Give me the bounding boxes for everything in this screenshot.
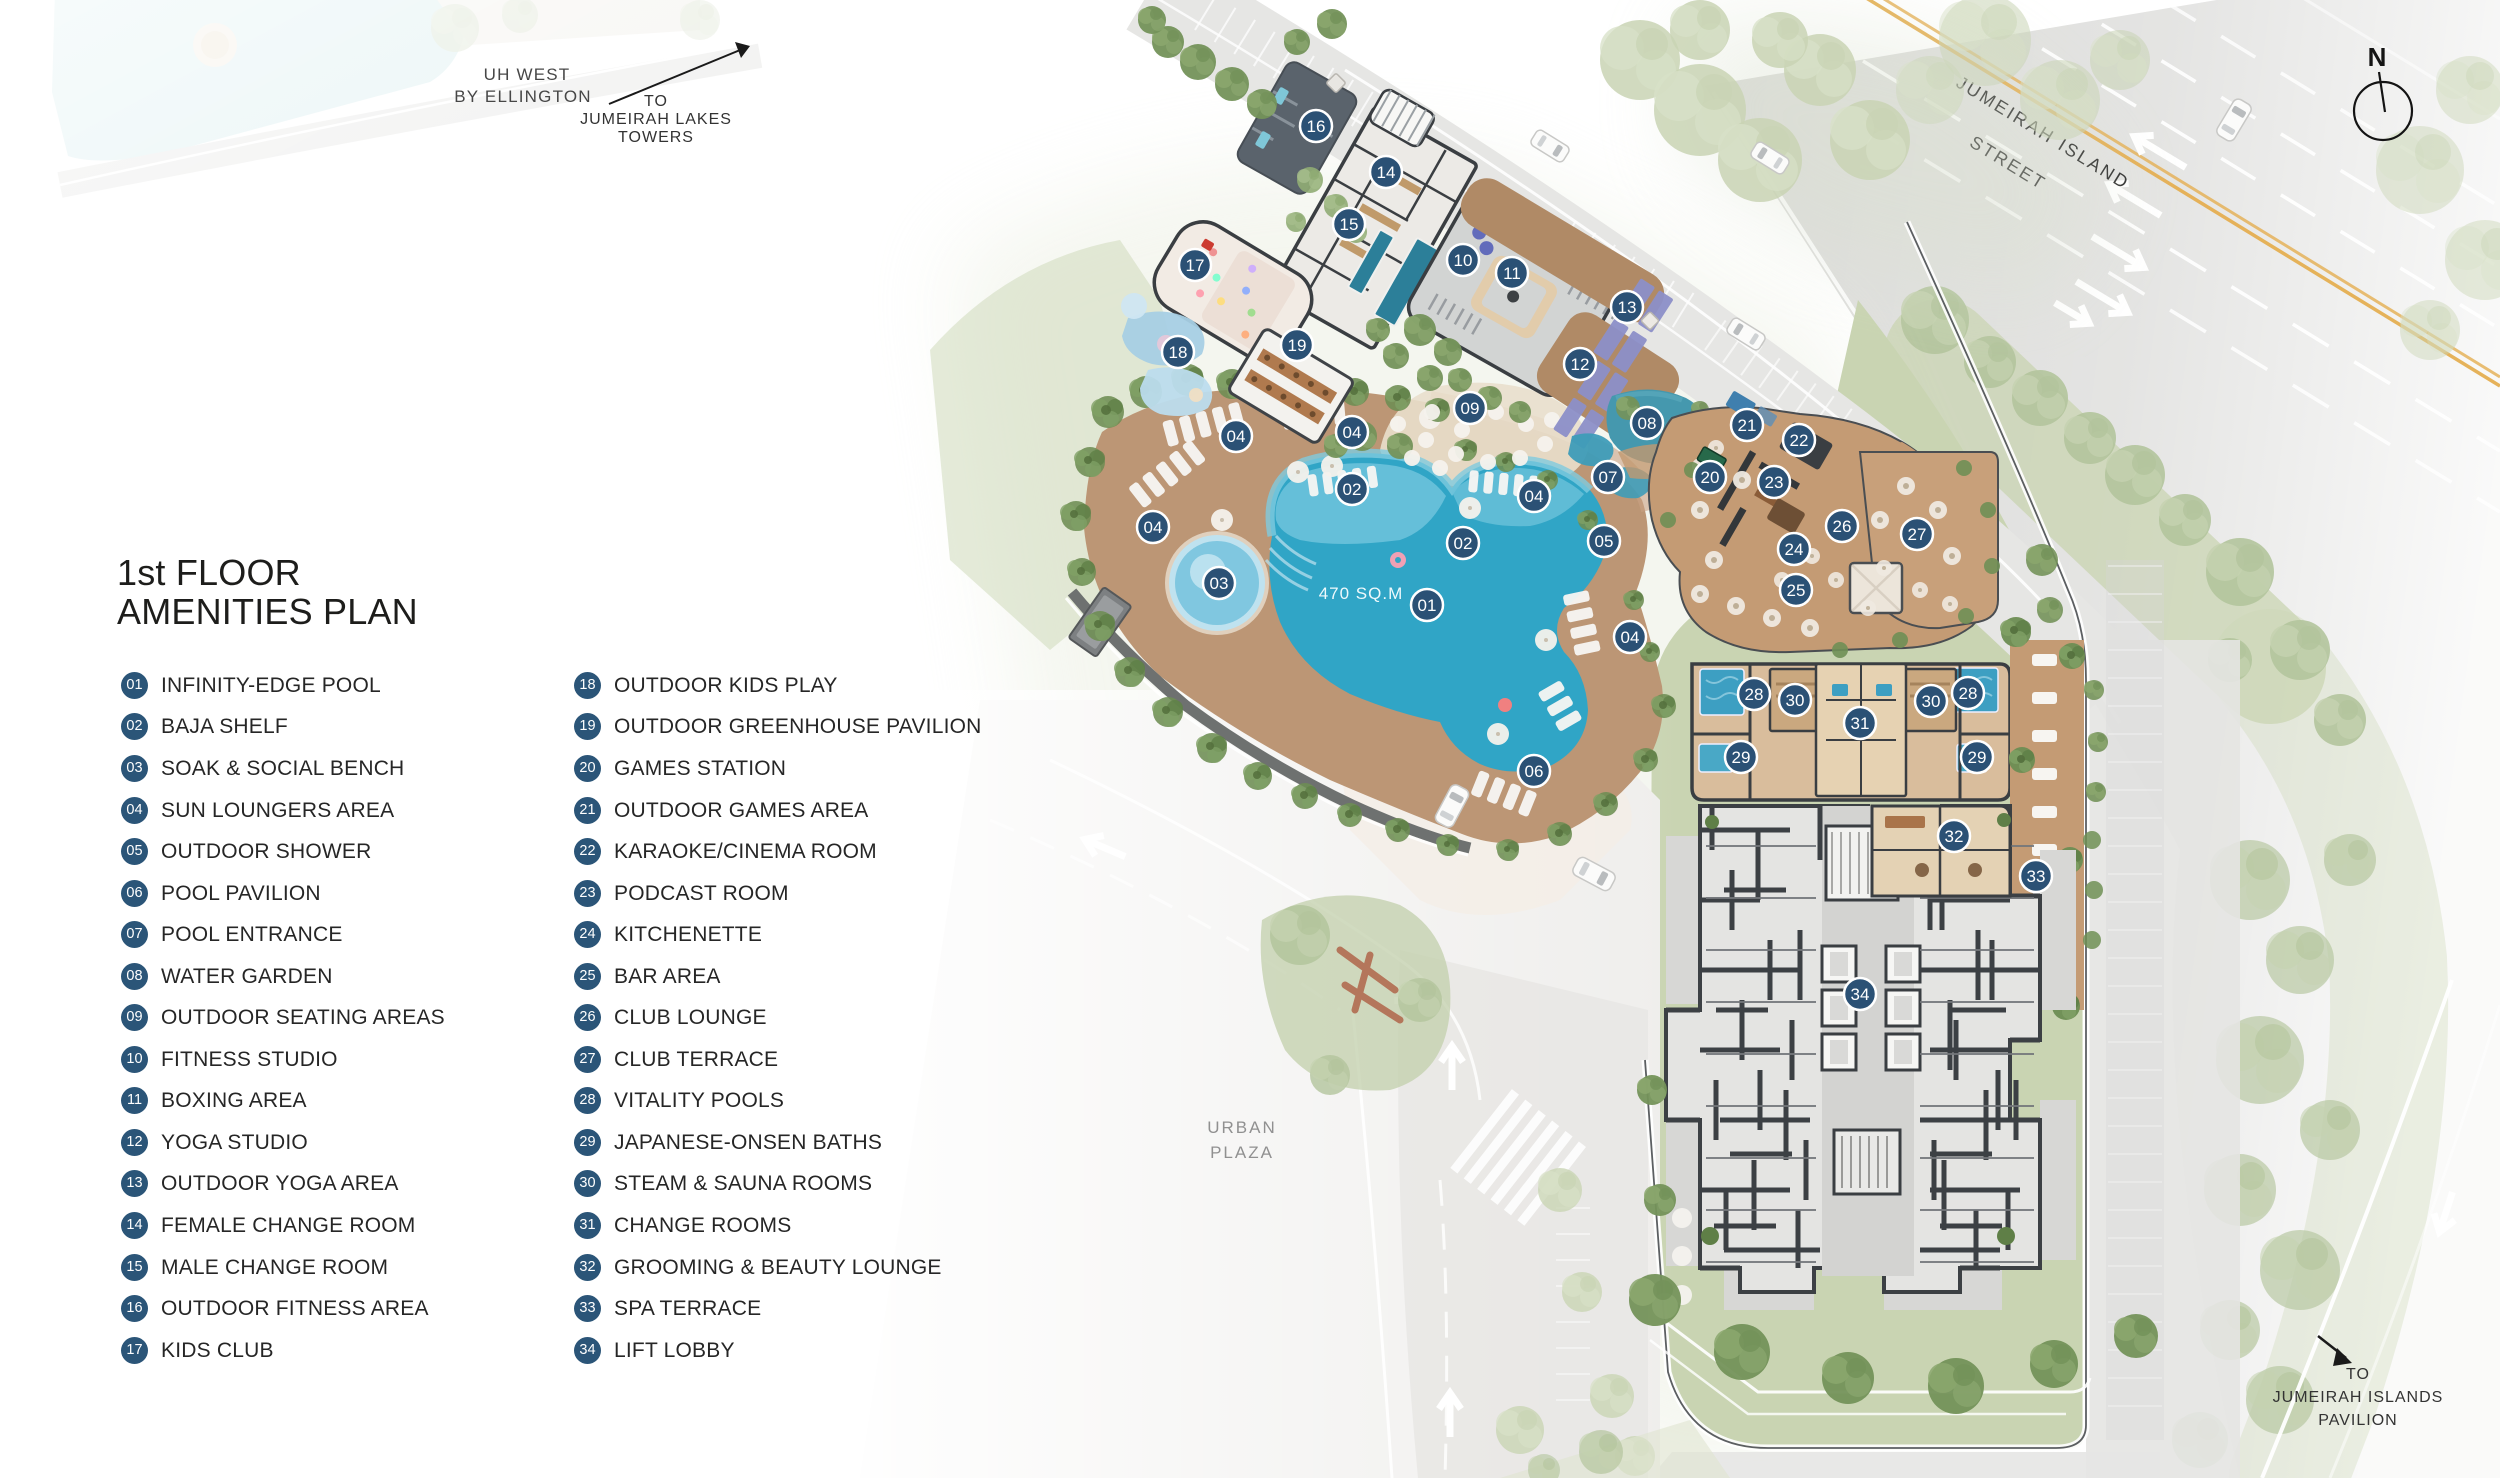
- svg-text:08: 08: [1638, 414, 1657, 433]
- svg-text:28: 28: [1745, 685, 1764, 704]
- svg-text:TO: TO: [644, 93, 668, 110]
- svg-text:32: 32: [1945, 827, 1964, 846]
- svg-text:14: 14: [1377, 163, 1396, 182]
- svg-text:15: 15: [1340, 215, 1359, 234]
- svg-text:02: 02: [1343, 480, 1362, 499]
- svg-text:TO: TO: [2346, 1366, 2370, 1383]
- svg-text:28: 28: [1959, 684, 1978, 703]
- svg-text:16: 16: [1307, 117, 1326, 136]
- svg-text:UH WEST: UH WEST: [484, 65, 571, 84]
- svg-text:TOWERS: TOWERS: [618, 129, 694, 146]
- svg-text:PLAZA: PLAZA: [1210, 1143, 1274, 1162]
- svg-text:PAVILION: PAVILION: [2318, 1412, 2397, 1429]
- svg-text:24: 24: [1785, 540, 1804, 559]
- svg-text:23: 23: [1765, 473, 1784, 492]
- svg-text:04: 04: [1525, 487, 1544, 506]
- svg-text:470 SQ.M: 470 SQ.M: [1319, 584, 1404, 603]
- svg-text:25: 25: [1787, 581, 1806, 600]
- svg-text:JUMEIRAH ISLANDS: JUMEIRAH ISLANDS: [2273, 1389, 2444, 1406]
- svg-text:34: 34: [1851, 985, 1870, 1004]
- svg-text:31: 31: [1851, 714, 1870, 733]
- svg-text:03: 03: [1210, 574, 1229, 593]
- svg-text:06: 06: [1525, 762, 1544, 781]
- svg-text:13: 13: [1618, 298, 1637, 317]
- svg-text:29: 29: [1968, 748, 1987, 767]
- svg-text:30: 30: [1922, 692, 1941, 711]
- svg-text:27: 27: [1908, 525, 1927, 544]
- svg-text:11: 11: [1503, 264, 1521, 283]
- svg-text:04: 04: [1227, 427, 1246, 446]
- svg-text:19: 19: [1288, 336, 1307, 355]
- svg-text:07: 07: [1599, 468, 1618, 487]
- svg-text:10: 10: [1454, 251, 1473, 270]
- svg-text:05: 05: [1595, 532, 1614, 551]
- svg-text:01: 01: [1418, 596, 1437, 615]
- svg-text:33: 33: [2027, 867, 2046, 886]
- svg-text:12: 12: [1571, 355, 1590, 374]
- svg-text:JUMEIRAH LAKES: JUMEIRAH LAKES: [580, 111, 732, 128]
- svg-text:09: 09: [1461, 399, 1480, 418]
- svg-text:17: 17: [1186, 256, 1205, 275]
- svg-text:04: 04: [1343, 423, 1362, 442]
- svg-text:BY ELLINGTON: BY ELLINGTON: [454, 87, 592, 106]
- svg-text:21: 21: [1738, 416, 1757, 435]
- svg-text:N: N: [2368, 42, 2387, 72]
- svg-text:02: 02: [1454, 534, 1473, 553]
- svg-text:04: 04: [1144, 518, 1163, 537]
- svg-text:30: 30: [1786, 691, 1805, 710]
- svg-text:URBAN: URBAN: [1207, 1118, 1277, 1137]
- svg-text:20: 20: [1701, 468, 1720, 487]
- svg-text:29: 29: [1732, 748, 1751, 767]
- svg-text:26: 26: [1833, 517, 1852, 536]
- svg-text:22: 22: [1790, 431, 1809, 450]
- svg-text:18: 18: [1169, 343, 1188, 362]
- svg-text:04: 04: [1621, 628, 1640, 647]
